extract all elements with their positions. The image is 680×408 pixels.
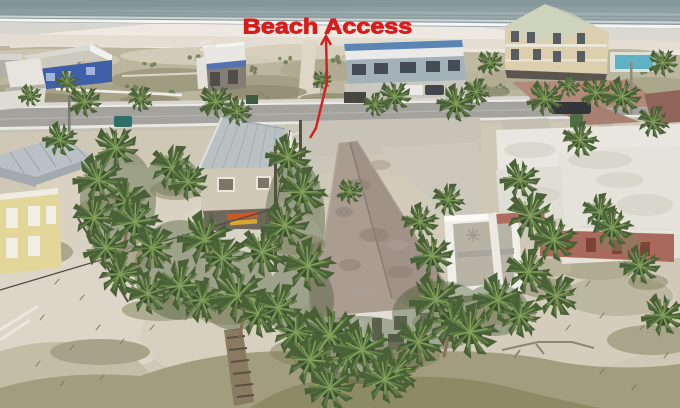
svg-text:Beach Access: Beach Access	[243, 14, 413, 38]
